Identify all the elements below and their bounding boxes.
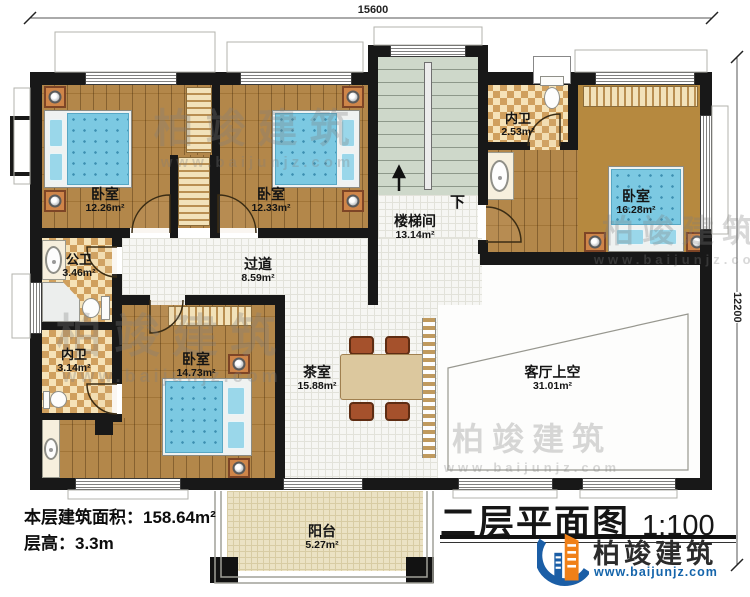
toilet-icon <box>82 298 100 318</box>
lamp-icon <box>49 195 62 208</box>
wall <box>42 322 112 330</box>
wall <box>275 295 285 478</box>
dimension-height-label: 12200 <box>729 292 745 323</box>
wall <box>560 142 578 150</box>
pillow-icon <box>649 229 677 245</box>
wall <box>42 228 130 238</box>
window <box>458 478 553 490</box>
stair-handrail <box>424 62 432 190</box>
double-bed-icon <box>162 378 252 456</box>
pillow-icon <box>341 153 355 181</box>
chair-icon <box>385 402 410 421</box>
wall <box>185 295 283 305</box>
nightstand <box>584 232 606 252</box>
wall <box>95 413 113 435</box>
sink-icon <box>44 438 58 460</box>
dimension-width-label: 15600 <box>342 4 404 16</box>
wardrobe-icon <box>178 157 210 226</box>
lamp-icon <box>347 195 360 208</box>
pillow-icon <box>227 421 245 449</box>
window <box>390 45 466 57</box>
wall-bump-out <box>10 116 34 176</box>
double-bed-icon <box>272 110 360 188</box>
pillow-icon <box>341 119 355 147</box>
double-bed-icon <box>44 110 132 188</box>
floor-height-note: 层高：3.3m <box>24 531 216 557</box>
mattress <box>275 113 337 185</box>
pillow-icon <box>616 229 644 245</box>
wall <box>486 142 530 150</box>
hallway-floor <box>122 238 482 305</box>
wall <box>363 478 458 490</box>
window <box>85 72 177 85</box>
wardrobe-icon <box>168 306 252 326</box>
sink-icon <box>490 160 509 192</box>
window <box>700 115 712 230</box>
toilet-icon <box>101 296 110 320</box>
lamp-icon <box>589 236 602 249</box>
wall <box>675 478 712 490</box>
wardrobe-icon <box>186 87 212 153</box>
wall <box>112 238 122 247</box>
mattress <box>67 113 129 185</box>
floor-notes: 本层建筑面积：158.64m² 层高：3.3m <box>24 505 216 556</box>
floor-area-note: 本层建筑面积：158.64m² <box>24 505 216 531</box>
window <box>75 478 181 490</box>
toilet-icon <box>50 391 67 408</box>
wall <box>212 85 220 155</box>
chair-icon <box>349 336 374 355</box>
nightstand <box>228 354 250 374</box>
nightstand <box>44 86 66 108</box>
window <box>582 478 676 490</box>
wardrobe-icon <box>583 86 698 107</box>
brand-website: www.baijunjz.com <box>594 565 718 579</box>
wall <box>568 77 578 150</box>
lamp-icon <box>233 462 246 475</box>
bedroom-bottom-floor-ext <box>60 418 127 478</box>
pillow-icon <box>49 153 63 181</box>
wall <box>210 155 220 238</box>
toilet-icon <box>540 76 564 86</box>
balcony-floor <box>227 491 423 571</box>
double-bed-icon <box>608 166 684 252</box>
window <box>240 72 352 85</box>
lamp-icon <box>347 91 360 104</box>
window <box>595 72 695 85</box>
mattress <box>611 169 681 225</box>
wall <box>122 295 150 305</box>
chair-icon <box>385 336 410 355</box>
wall <box>478 45 488 205</box>
wall <box>368 45 378 305</box>
wall <box>180 478 283 490</box>
nightstand <box>228 458 250 478</box>
brand-logo-icon <box>537 526 589 590</box>
balcony-sliding-door <box>283 478 363 490</box>
wall <box>30 478 75 490</box>
mattress <box>165 381 223 453</box>
wall <box>480 252 712 265</box>
toilet-icon <box>43 391 50 409</box>
floor-plan: 柏竣建筑 www.baijunjz.com 柏竣建筑 www.baijunjz.… <box>0 0 750 597</box>
tea-table-icon <box>340 354 424 400</box>
lamp-icon <box>49 91 62 104</box>
column <box>210 557 238 583</box>
stairs-down-label: 下 <box>450 191 465 212</box>
wall <box>112 414 122 422</box>
chair-icon <box>349 402 374 421</box>
lamp-icon <box>233 358 246 371</box>
wall <box>170 155 178 238</box>
sink-icon <box>45 246 62 274</box>
wall <box>258 228 378 238</box>
railing <box>422 318 436 458</box>
nightstand <box>44 190 66 212</box>
wall <box>552 478 582 490</box>
wall <box>112 274 122 384</box>
window <box>30 282 42 334</box>
nightstand <box>342 86 364 108</box>
nightstand <box>342 190 364 212</box>
pillow-icon <box>49 119 63 147</box>
toilet-icon <box>544 87 560 109</box>
brand-logo: 柏竣建筑 www.baijunjz.com <box>537 526 749 595</box>
pillow-icon <box>227 387 245 415</box>
column <box>406 557 434 583</box>
